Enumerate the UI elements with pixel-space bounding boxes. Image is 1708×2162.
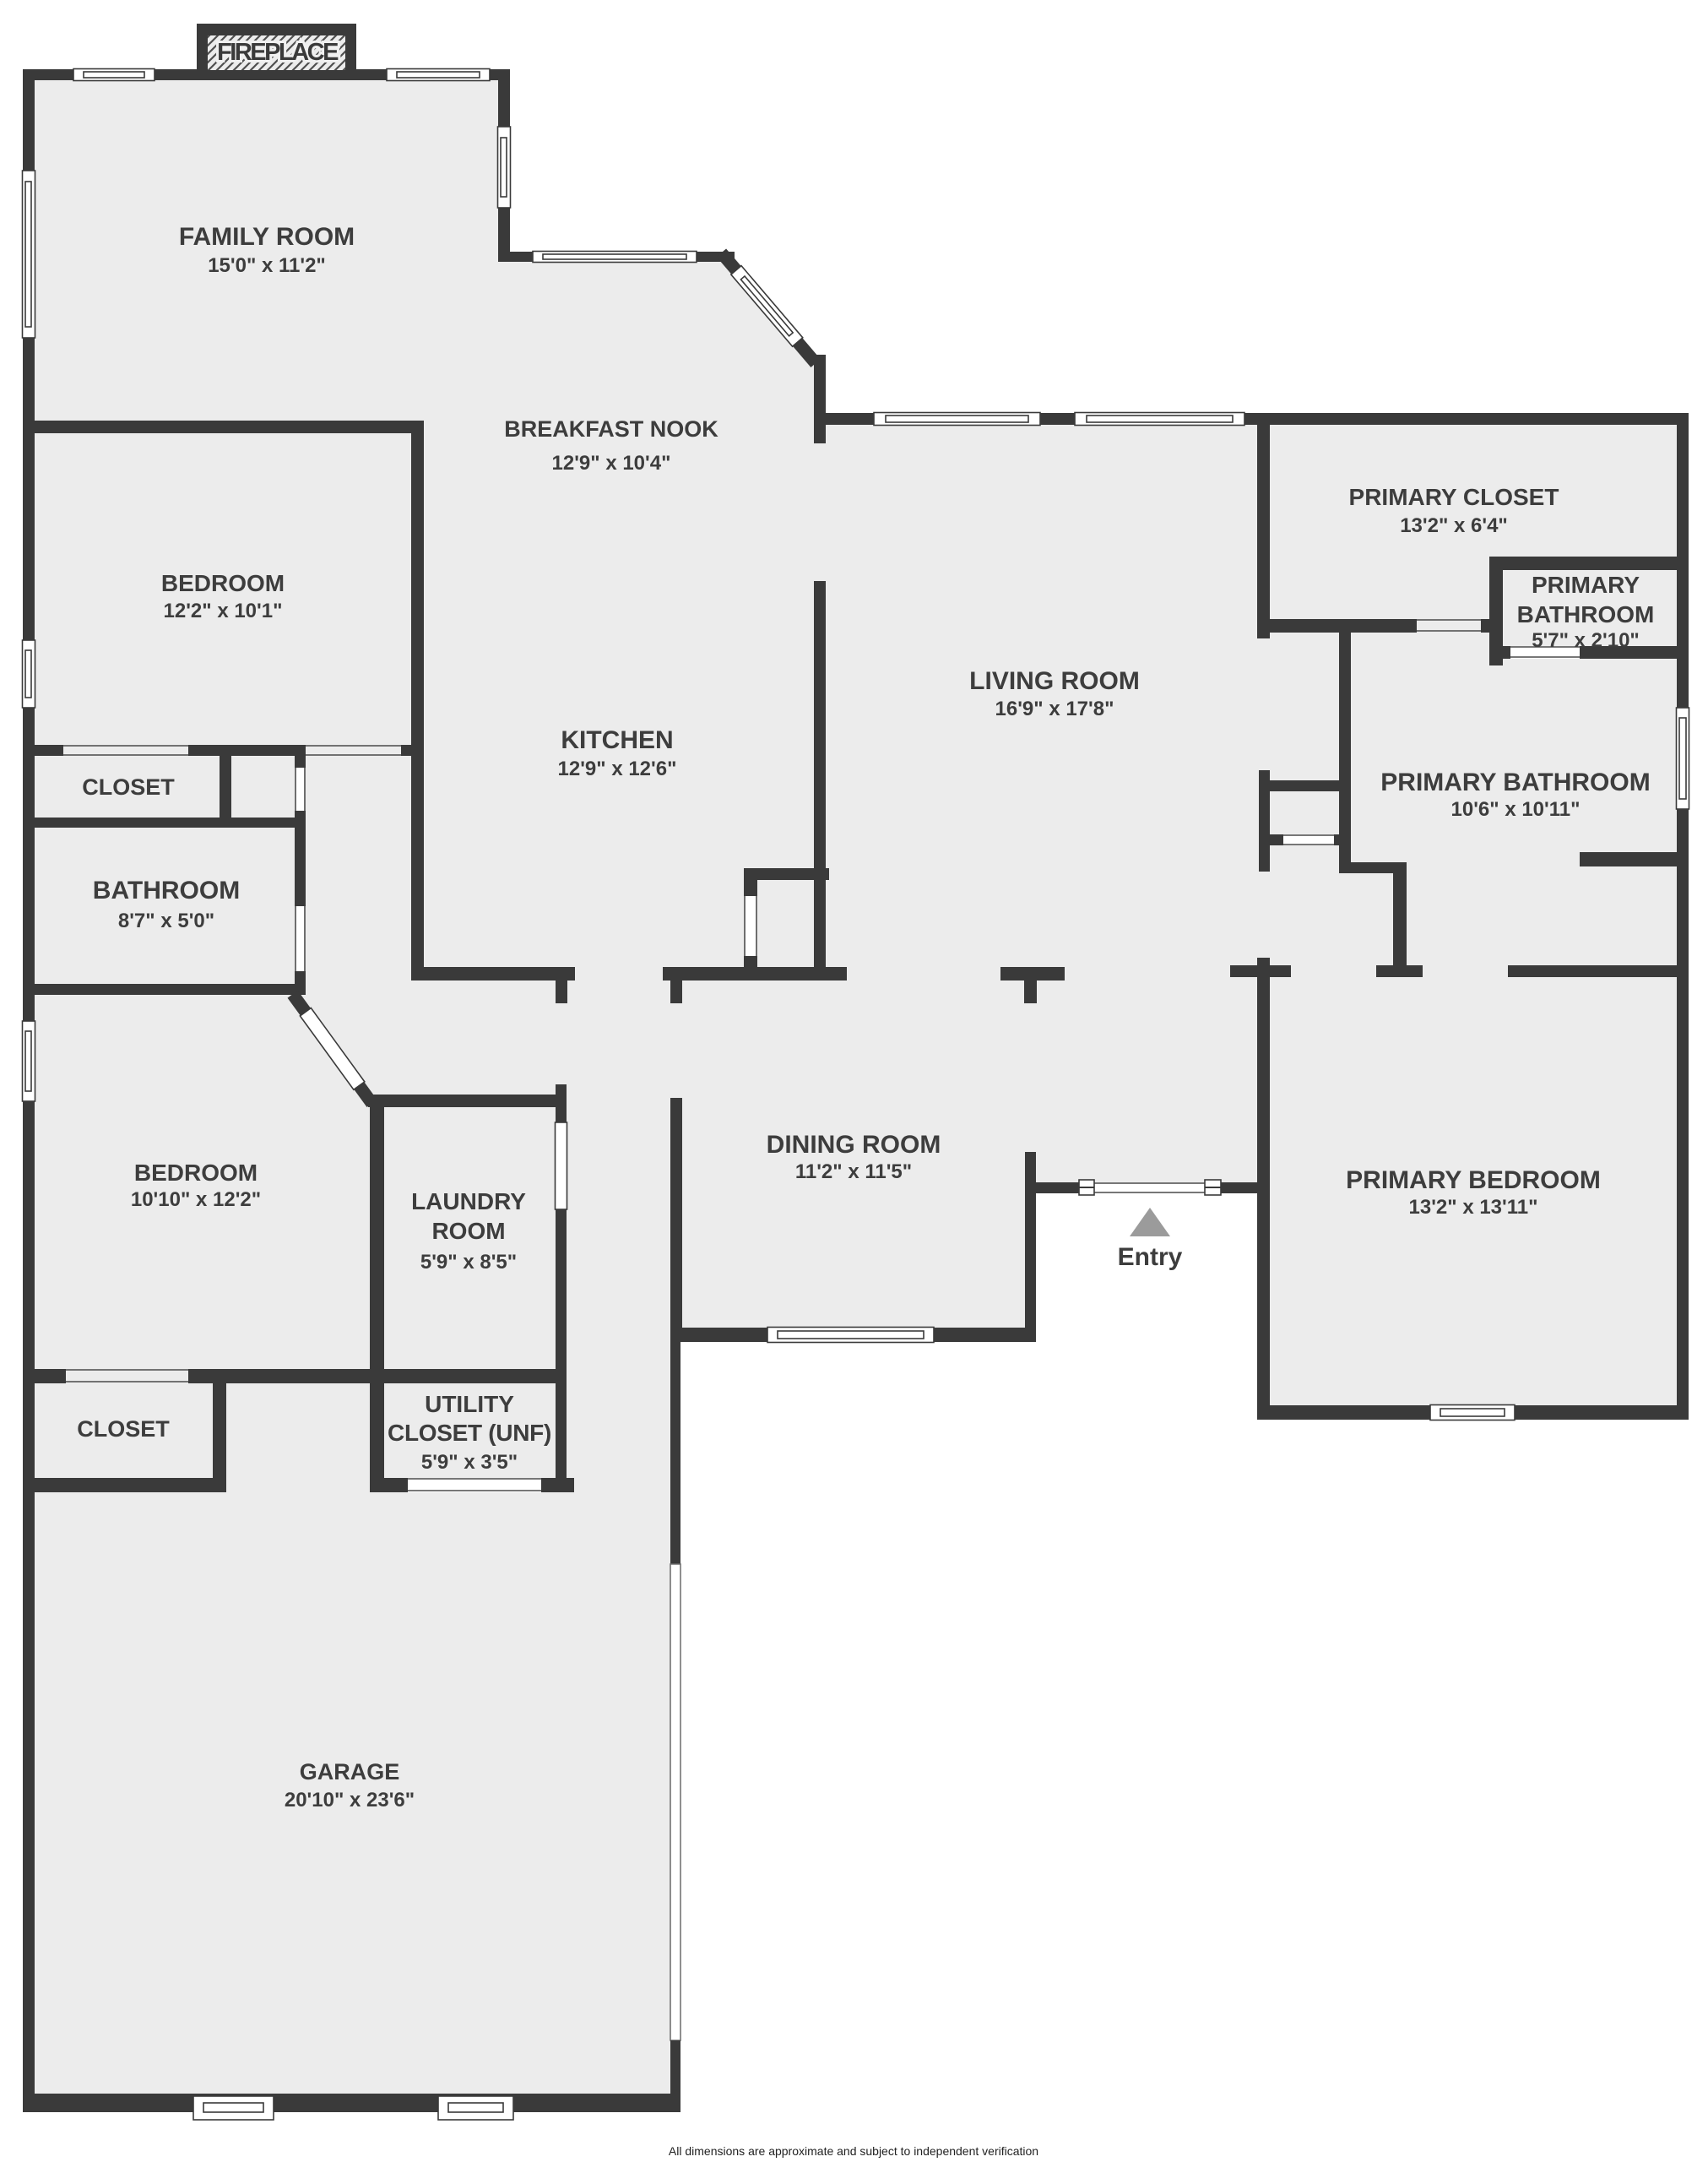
svg-text:BATHROOM: BATHROOM [1517, 601, 1655, 627]
svg-text:ROOM: ROOM [431, 1218, 505, 1244]
svg-text:12'2" x 10'1": 12'2" x 10'1" [164, 600, 283, 622]
svg-text:FIREPLACE: FIREPLACE [217, 39, 339, 66]
svg-text:13'2" x 6'4": 13'2" x 6'4" [1400, 514, 1508, 537]
svg-text:12'9" x 12'6": 12'9" x 12'6" [558, 758, 677, 780]
svg-text:5'7" x 2'10": 5'7" x 2'10" [1532, 629, 1640, 652]
svg-text:UTILITY: UTILITY [425, 1391, 514, 1417]
svg-text:5'9" x 3'5": 5'9" x 3'5" [421, 1451, 518, 1474]
svg-text:LIVING ROOM: LIVING ROOM [969, 667, 1140, 695]
svg-text:10'6" x 10'11": 10'6" x 10'11" [1451, 798, 1581, 821]
svg-text:CLOSET: CLOSET [82, 774, 175, 800]
svg-text:BEDROOM: BEDROOM [161, 570, 285, 596]
svg-text:PRIMARY BEDROOM: PRIMARY BEDROOM [1346, 1166, 1601, 1194]
svg-text:DINING ROOM: DINING ROOM [767, 1131, 941, 1159]
svg-text:KITCHEN: KITCHEN [561, 726, 673, 754]
svg-text:13'2" x 13'11": 13'2" x 13'11" [1409, 1196, 1538, 1219]
svg-text:FAMILY ROOM: FAMILY ROOM [179, 223, 355, 251]
svg-text:GARAGE: GARAGE [300, 1759, 400, 1784]
svg-text:20'10" x 23'6": 20'10" x 23'6" [285, 1789, 415, 1812]
svg-text:PRIMARY: PRIMARY [1532, 572, 1640, 598]
svg-text:PRIMARY BATHROOM: PRIMARY BATHROOM [1380, 769, 1650, 796]
svg-text:8'7" x 5'0": 8'7" x 5'0" [118, 910, 214, 932]
svg-text:5'9" x 8'5": 5'9" x 8'5" [420, 1251, 517, 1274]
svg-text:CLOSET (UNF): CLOSET (UNF) [388, 1420, 551, 1446]
svg-text:BATHROOM: BATHROOM [93, 877, 240, 904]
svg-text:15'0" x 11'2": 15'0" x 11'2" [208, 254, 326, 277]
svg-text:11'2" x 11'5": 11'2" x 11'5" [795, 1160, 912, 1183]
svg-text:Entry: Entry [1118, 1243, 1183, 1271]
svg-text:BEDROOM: BEDROOM [134, 1160, 258, 1186]
svg-text:CLOSET: CLOSET [77, 1416, 170, 1442]
svg-text:LAUNDRY: LAUNDRY [411, 1188, 526, 1214]
svg-text:10'10" x 12'2": 10'10" x 12'2" [131, 1188, 261, 1211]
svg-text:PRIMARY CLOSET: PRIMARY CLOSET [1349, 484, 1559, 510]
svg-text:BREAKFAST NOOK: BREAKFAST NOOK [504, 416, 718, 442]
svg-text:All dimensions are approximate: All dimensions are approximate and subje… [669, 2144, 1038, 2158]
svg-text:16'9" x 17'8": 16'9" x 17'8" [995, 698, 1114, 720]
svg-text:12'9" x 10'4": 12'9" x 10'4" [552, 452, 671, 475]
